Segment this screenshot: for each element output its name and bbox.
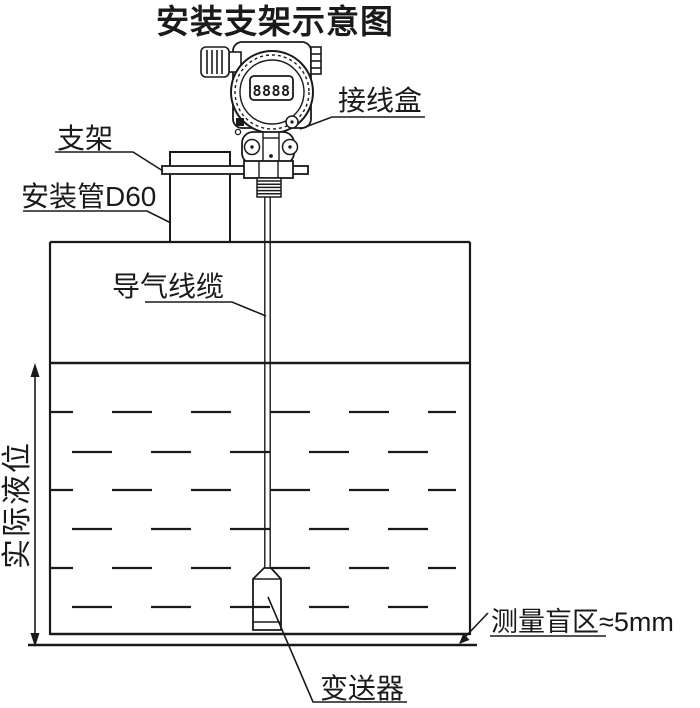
label-junction-box: 接线盒 [338, 85, 422, 116]
probe-body [253, 568, 281, 630]
arrow-up-icon [31, 363, 40, 377]
display-screen: 8888 [250, 76, 293, 100]
label-actual-level: 实际液位 [1, 441, 34, 569]
label-mounting-pipe: 安装管D60 [21, 181, 156, 212]
right-flange-icon [311, 47, 321, 74]
diagram-page: 8888 [0, 0, 700, 708]
cable-line [265, 197, 270, 569]
sensor-neck [242, 132, 298, 164]
screw-small-icon [235, 129, 240, 134]
bracket-leader [55, 152, 163, 171]
page-title: 安装支架示意图 [156, 3, 394, 40]
label-transmitter: 变送器 [320, 673, 404, 704]
label-air-cable: 导气线缆 [112, 271, 224, 302]
installation-diagram: 8888 [0, 0, 700, 708]
screw-left-icon [236, 118, 244, 126]
junction-box-leader [300, 117, 425, 129]
threaded-stem [257, 178, 281, 197]
mounting-pipe-leader [23, 211, 171, 223]
label-bracket: 支架 [57, 123, 113, 154]
display-value: 8888 [252, 82, 290, 100]
air-cable-leader [145, 302, 266, 316]
hex-nut [244, 161, 293, 178]
label-blind-zone: 测量盲区≈5mm [491, 607, 674, 637]
